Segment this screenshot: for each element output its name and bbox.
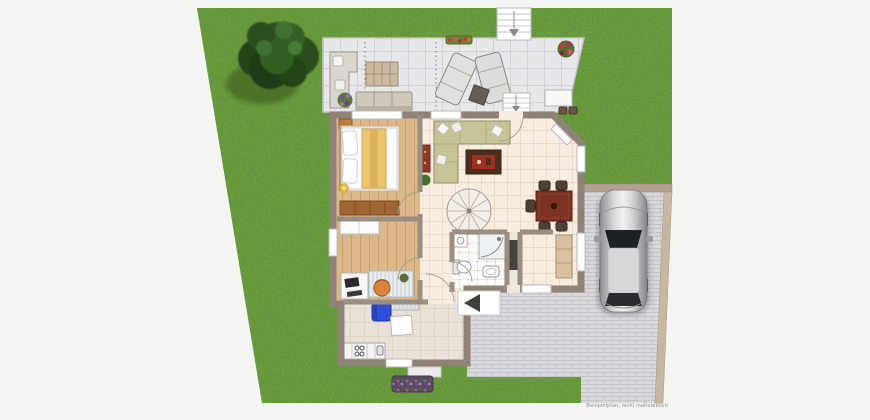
entry-window	[577, 233, 585, 271]
dining-chair	[556, 181, 567, 190]
kitchen-sink	[377, 346, 383, 355]
kitchen-radiator	[391, 304, 419, 310]
armchair-back	[372, 303, 377, 321]
dining-table	[536, 191, 572, 221]
stool	[559, 107, 567, 114]
garden-stairs	[497, 8, 531, 40]
outdoor-table	[366, 62, 398, 86]
terrace-stairs	[503, 93, 530, 114]
kitchen-counter	[342, 343, 385, 359]
flower-pot	[558, 41, 575, 58]
washing-machine	[454, 234, 467, 247]
blanket-fold	[370, 129, 378, 188]
washbasin	[483, 266, 499, 277]
bench-sofa	[356, 92, 412, 112]
study-plant	[400, 274, 409, 283]
entrance	[458, 291, 500, 315]
dining-window	[577, 146, 585, 172]
lamp-bulb	[343, 187, 346, 190]
dining-chair	[539, 181, 550, 190]
spiral-staircase	[447, 189, 491, 233]
sofa-pillow	[335, 80, 345, 90]
floor-plan-canvas: Beispielplan, nicht maßstäblich	[0, 0, 870, 420]
potted-plant	[338, 93, 353, 108]
car-windshield	[605, 230, 642, 248]
car-mirror	[594, 236, 601, 242]
dining-chair	[556, 222, 567, 231]
floor-plan-graphic	[0, 0, 870, 420]
pillow	[342, 131, 358, 156]
car	[594, 190, 653, 315]
living-window	[431, 111, 461, 119]
kitchen-table	[390, 315, 412, 335]
office-chair	[374, 280, 390, 296]
study-window	[329, 229, 337, 256]
sofa-pillow	[333, 56, 343, 66]
kitchen-window	[386, 359, 412, 367]
desk	[341, 273, 368, 299]
doormat	[509, 240, 518, 270]
coffee-table	[466, 150, 501, 174]
front-door-opening	[507, 285, 520, 293]
entry-wardrobe	[556, 235, 572, 278]
car-mirror	[646, 236, 653, 242]
dining-chair	[526, 200, 535, 212]
bedroom-window	[352, 111, 402, 119]
flower-box	[446, 36, 472, 44]
stool	[569, 107, 577, 114]
purple-flower-bed	[392, 376, 433, 392]
terrace	[323, 36, 584, 114]
shower	[479, 234, 505, 259]
bedroom-sideboard	[340, 201, 399, 215]
terrace-door-opening	[499, 111, 523, 119]
car-rear-window	[605, 293, 642, 306]
pillow	[342, 159, 357, 184]
bedroom-furniture	[339, 119, 399, 215]
car-roof	[608, 248, 639, 293]
bistro-table	[545, 90, 572, 106]
disclaimer-text: Beispielplan, nicht maßstäblich	[460, 403, 668, 409]
entry-bottom-window	[522, 285, 551, 293]
